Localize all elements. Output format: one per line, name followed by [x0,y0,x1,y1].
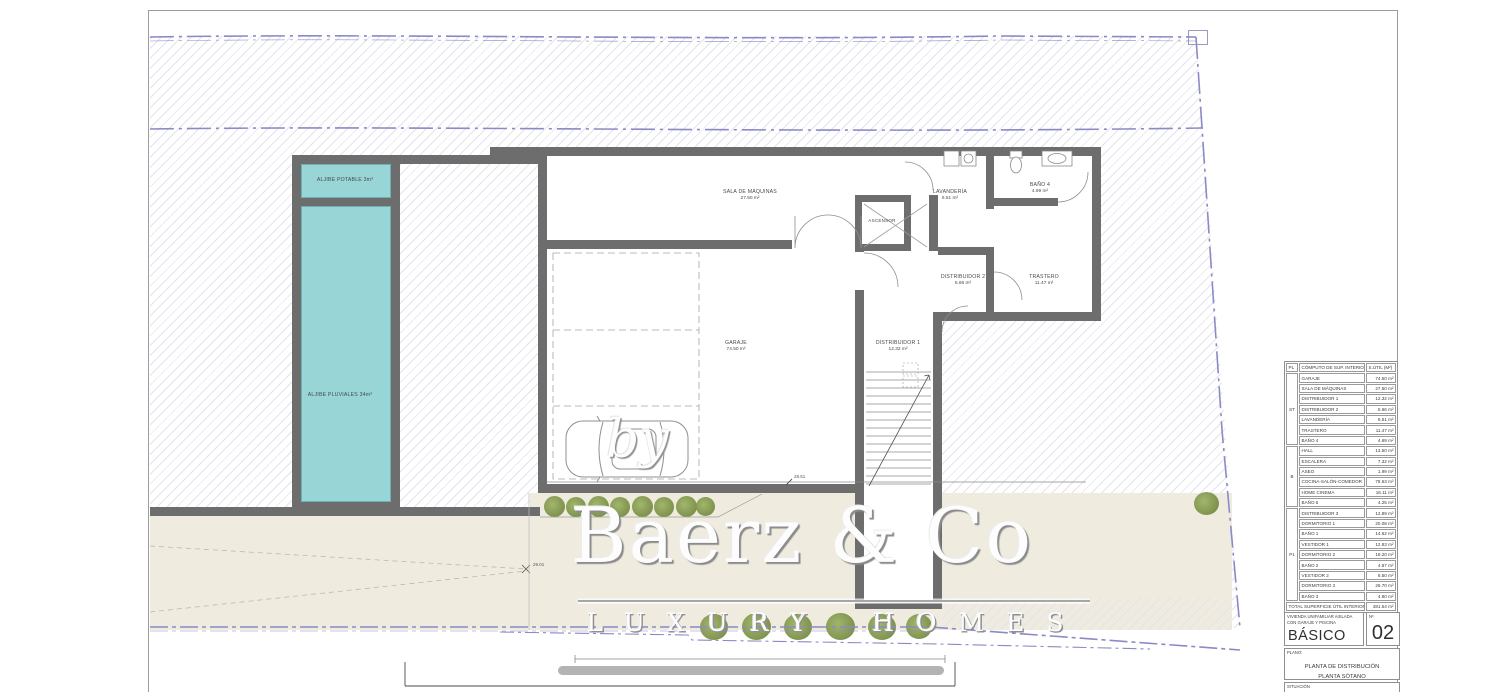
room-area: 11.47 m² [1029,281,1059,287]
room-area-cell: 78.63 m² [1366,477,1396,486]
room-area: 27.50 m² [723,196,777,202]
table-row: BAÑO 34.80 m² [1286,592,1396,601]
floor-group-label: ST [1286,373,1298,445]
table-row: TRASTERO11.47 m² [1286,425,1396,434]
table-row: BAÑO 114.62 m² [1286,529,1396,538]
room-area-cell: 12.32 m² [1366,394,1396,403]
room-name-cell: ESCALERA [1299,457,1365,466]
room-area-cell: 4.87 m² [1366,560,1396,569]
room-area: 4.69 m² [1030,189,1050,195]
room-label-trastero: TRASTERO 11.47 m² [1029,274,1059,287]
car-drawing [566,416,688,482]
room-label-lavanderia: LAVANDERÍA 6.51 m² [933,189,967,202]
room-area-cell: 27.50 m² [1366,384,1396,393]
room-name-cell: COCINA-SALÓN-COMEDOR [1299,477,1365,486]
plano-label: PLANO: [1287,650,1399,656]
number-label: Nº [1369,614,1399,620]
room-area: 5.66 m² [941,281,985,287]
project-line2: CON GARAJE Y PISCINA [1287,620,1363,626]
table-row: DISTRIBUIDOR 112.32 m² [1286,394,1396,403]
room-name: BAÑO 4 [1030,182,1050,189]
table-row: DORMITORIO 326.70 m² [1286,581,1396,590]
room-name-cell: DORMITORIO 1 [1299,519,1365,528]
room-area-cell: 4.80 m² [1366,592,1396,601]
room-area-cell: 74.50 m² [1366,373,1396,382]
room-name-cell: TRASTERO [1299,425,1365,434]
tank-name: ALJIBE PLUVIALES 34m³ [308,392,372,399]
table-row: VESTIDOR 26.50 m² [1286,571,1396,580]
room-area: 6.51 m² [933,196,967,202]
property-boundary-lines [150,36,1240,650]
room-name: GARAJE [725,340,747,347]
room-name-cell: BAÑO 4 [1299,436,1365,445]
plan-linework [0,0,1500,692]
fixtures [944,151,1072,173]
room-name: SALA DE MÁQUINAS [723,189,777,196]
room-area-cell: 7.32 m² [1366,457,1396,466]
title-situacion-box: SITUACIÓN [1284,682,1400,692]
room-name-cell: BAÑO 5 [1299,498,1365,507]
total-label-cell: TOTAL SUPERFICIE ÚTIL INTERIOR [1286,602,1365,611]
room-name-cell: DORMITORIO 3 [1299,581,1365,590]
table-row: HOME CINEMA16.11 m² [1286,488,1396,497]
table-row: P1DISTRIBUIDOR 312.89 m² [1286,508,1396,517]
room-name-cell: HOME CINEMA [1299,488,1365,497]
table-total-row: TOTAL SUPERFICIE ÚTIL INTERIOR 381.54 m² [1286,602,1396,611]
room-label-distribuidor1: DISTRIBUIDOR 1 12.32 m² [876,340,920,353]
room-name: ASCENSOR [868,218,895,224]
room-area-cell: 4.25 m² [1366,498,1396,507]
header-sutil: S.ÚTIL (M²) [1366,363,1396,372]
room-name-cell: HALL [1299,446,1365,455]
tank-label-pluviales: ALJIBE PLUVIALES 34m³ [308,392,372,399]
title-block: VIVIENDA UNIFAMILIAR AISLADA CON GARAJE … [1284,612,1400,692]
room-name: DISTRIBUIDOR 1 [876,340,920,347]
room-name-cell: DISTRIBUIDOR 2 [1299,405,1365,414]
total-value-cell: 381.54 m² [1366,602,1396,611]
table-row: BAÑO 54.25 m² [1286,498,1396,507]
room-area-cell: 12.83 m² [1366,540,1396,549]
table-row: DORMITORIO 120.08 m² [1286,519,1396,528]
table-row: LAVANDERÍA6.51 m² [1286,415,1396,424]
dimension-label: 28.51 [794,474,805,479]
room-label-garaje: GARAJE 74.50 m² [725,340,747,353]
room-name-cell: BAÑO 3 [1299,592,1365,601]
room-name-cell: BAÑO 2 [1299,560,1365,569]
room-area: 12.32 m² [876,347,920,353]
room-name: DISTRIBUIDOR 2 [941,274,985,281]
room-name-cell: SALA DE MÁQUINAS [1299,384,1365,393]
room-area-cell: 12.89 m² [1366,508,1396,517]
room-area-cell: 11.47 m² [1366,425,1396,434]
room-name-cell: DISTRIBUIDOR 1 [1299,394,1365,403]
phase-label: BÁSICO [1288,628,1346,644]
room-area-cell: 5.66 m² [1366,405,1396,414]
table-row: ESCALERA7.32 m² [1286,457,1396,466]
tank-label-potable: ALJIBE POTABLE 3m³ [317,177,373,184]
room-area-cell: 20.08 m² [1366,519,1396,528]
room-name-cell: ASEO [1299,467,1365,476]
room-name-cell: BAÑO 1 [1299,529,1365,538]
room-area-cell: 18.20 m² [1366,550,1396,559]
room-name-cell: GARAJE [1299,373,1365,382]
floor-group-label: B [1286,446,1298,507]
room-area: 74.50 m² [725,347,747,353]
title-project-box: VIVIENDA UNIFAMILIAR AISLADA CON GARAJE … [1284,612,1364,646]
room-name: TRASTERO [1029,274,1059,281]
table-row: COCINA-SALÓN-COMEDOR78.63 m² [1286,477,1396,486]
header-computo: CÓMPUTO DE SUP. INTERIORES [1299,363,1365,372]
room-label-bano4: BAÑO 4 4.69 m² [1030,182,1050,195]
table-row: STGARAJE74.50 m² [1286,373,1396,382]
table-row: VESTIDOR 112.83 m² [1286,540,1396,549]
room-name-cell: LAVANDERÍA [1299,415,1365,424]
staircase [866,363,931,486]
title-number-box: Nº 02 [1366,612,1400,646]
watermark-divider [578,600,1090,602]
room-area-cell: 1.99 m² [1366,467,1396,476]
room-name-cell: DISTRIBUIDOR 3 [1299,508,1365,517]
table-row: DISTRIBUIDOR 25.66 m² [1286,405,1396,414]
sheet-number: 02 [1367,622,1399,645]
room-area-cell: 13.50 m² [1366,446,1396,455]
room-label-ascensor: ASCENSOR [868,218,895,224]
room-label-distribuidor2: DISTRIBUIDOR 2 5.66 m² [941,274,985,287]
floor-group-label: P1 [1286,508,1298,601]
room-name: LAVANDERÍA [933,189,967,196]
situacion-label: SITUACIÓN [1287,684,1399,690]
room-name-cell: VESTIDOR 1 [1299,540,1365,549]
room-area-cell: 26.70 m² [1366,581,1396,590]
header-pl: PL [1286,363,1298,372]
screenshot-root: ALJIBE POTABLE 3m³ ALJIBE PLUVIALES 34m³… [0,0,1500,692]
table-header-row: PL CÓMPUTO DE SUP. INTERIORES S.ÚTIL (M²… [1286,363,1396,372]
elevator-cross [864,204,927,247]
plano-line1: PLANTA DE DISTRIBUCIÓN [1285,663,1399,673]
survey-point-label: 29.01 [533,562,544,567]
street-lines [405,655,955,686]
table-row: DORMITORIO 218.20 m² [1286,550,1396,559]
areas-table: PL CÓMPUTO DE SUP. INTERIORES S.ÚTIL (M²… [1284,361,1398,613]
tank-name: ALJIBE POTABLE 3m³ [317,177,373,184]
table-row: BAÑO 44.69 m² [1286,436,1396,445]
room-name-cell: DORMITORIO 2 [1299,550,1365,559]
room-area-cell: 4.69 m² [1366,436,1396,445]
room-area-cell: 14.62 m² [1366,529,1396,538]
room-area-cell: 6.51 m² [1366,415,1396,424]
room-label-sala: SALA DE MÁQUINAS 27.50 m² [723,189,777,202]
room-area-cell: 16.11 m² [1366,488,1396,497]
planter-edge [540,494,762,517]
table-row: SALA DE MÁQUINAS27.50 m² [1286,384,1396,393]
terrain-guide-lines [150,546,526,612]
room-area-cell: 6.50 m² [1366,571,1396,580]
table-row: ASEO1.99 m² [1286,467,1396,476]
table-row: BAÑO 24.87 m² [1286,560,1396,569]
room-name-cell: VESTIDOR 2 [1299,571,1365,580]
title-plano-box: PLANO: PLANTA DE DISTRIBUCIÓN PLANTA SÓT… [1284,648,1400,680]
table-row: BHALL13.50 m² [1286,446,1396,455]
dimension-line [546,479,1086,485]
